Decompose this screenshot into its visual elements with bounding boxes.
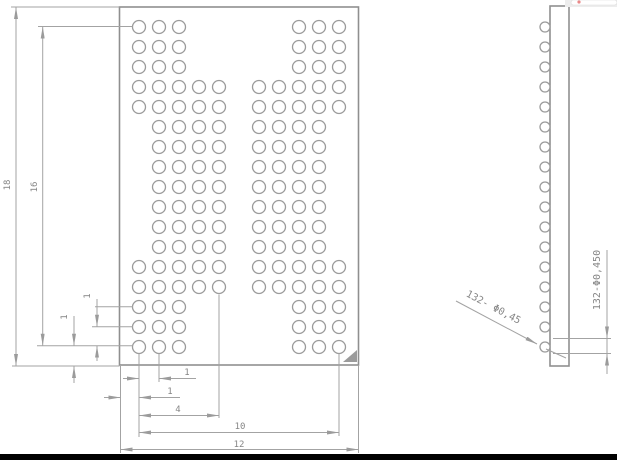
package-side-outline: [550, 6, 569, 366]
solder-ball: [293, 201, 306, 214]
dim-overall-width: 12: [121, 440, 359, 450]
solder-ball: [333, 341, 346, 354]
solder-ball: [253, 121, 266, 134]
solder-ball: [173, 101, 186, 114]
solder-ball: [193, 201, 206, 214]
solder-ball: [173, 221, 186, 234]
solder-ball: [273, 241, 286, 254]
solder-ball: [133, 61, 146, 74]
solder-ball: [213, 161, 226, 174]
dim-label-four-column-span: 4: [175, 405, 180, 415]
solder-ball: [193, 241, 206, 254]
solder-ball: [333, 61, 346, 74]
solder-ball: [540, 282, 550, 292]
solder-ball: [133, 281, 146, 294]
solder-ball: [133, 261, 146, 274]
solder-ball: [540, 202, 550, 212]
solder-ball: [333, 101, 346, 114]
solder-ball: [540, 182, 550, 192]
solder-ball: [173, 21, 186, 34]
solder-ball: [193, 141, 206, 154]
solder-ball: [133, 21, 146, 34]
solder-ball: [273, 261, 286, 274]
solder-ball: [273, 181, 286, 194]
solder-ball: [213, 181, 226, 194]
solder-ball: [313, 261, 326, 274]
solder-ball: [173, 301, 186, 314]
dim-label-row-pitch: 1: [83, 293, 93, 298]
solder-ball: [293, 41, 306, 54]
bga-technical-drawing: 18 16 1 1 1 1 4: [0, 0, 617, 460]
solder-ball: [313, 81, 326, 94]
solder-ball: [153, 81, 166, 94]
solder-ball: [313, 201, 326, 214]
solder-ball: [273, 201, 286, 214]
solder-ball: [193, 261, 206, 274]
solder-ball: [173, 281, 186, 294]
solder-ball: [153, 141, 166, 154]
solder-ball: [313, 341, 326, 354]
dim-label-col-pitch: 1: [184, 368, 189, 378]
solder-ball: [313, 321, 326, 334]
solder-ball: [273, 81, 286, 94]
solder-ball: [253, 101, 266, 114]
solder-ball: [540, 82, 550, 92]
solder-ball: [173, 61, 186, 74]
solder-ball: [213, 141, 226, 154]
dim-label-ball-field-height: 16: [30, 182, 40, 193]
solder-ball: [173, 201, 186, 214]
solder-ball: [293, 81, 306, 94]
solder-ball: [253, 201, 266, 214]
solder-ball: [213, 241, 226, 254]
solder-ball: [293, 241, 306, 254]
solder-ball: [173, 341, 186, 354]
front-view: [120, 7, 359, 365]
solder-ball: [313, 301, 326, 314]
solder-ball: [273, 121, 286, 134]
solder-ball: [313, 281, 326, 294]
side-view: [540, 6, 569, 366]
pin1-corner-marker: [343, 350, 357, 362]
solder-ball: [540, 62, 550, 72]
solder-ball: [293, 221, 306, 234]
solder-ball: [293, 261, 306, 274]
solder-ball: [253, 261, 266, 274]
solder-ball: [313, 141, 326, 154]
solder-ball: [293, 121, 306, 134]
solder-ball: [333, 81, 346, 94]
dim-label-row-edge-gap: 1: [60, 314, 70, 319]
solder-ball: [193, 181, 206, 194]
solder-ball-profile-column: [540, 22, 550, 352]
dim-label-ball-field-width: 10: [235, 422, 246, 432]
solder-ball: [253, 141, 266, 154]
solder-ball: [273, 141, 286, 154]
solder-ball: [253, 81, 266, 94]
solder-ball: [313, 121, 326, 134]
solder-ball: [193, 281, 206, 294]
dim-col-edge-gap: 1: [104, 387, 180, 398]
solder-ball: [313, 21, 326, 34]
solder-ball: [540, 242, 550, 252]
solder-ball: [213, 281, 226, 294]
record-dot-icon: [577, 0, 580, 3]
solder-ball: [540, 262, 550, 272]
solder-ball: [213, 201, 226, 214]
solder-ball: [133, 81, 146, 94]
solder-ball: [540, 122, 550, 132]
dim-ball-field-height: 16: [30, 27, 133, 346]
solder-ball: [293, 281, 306, 294]
solder-ball: [213, 221, 226, 234]
solder-ball: [213, 121, 226, 134]
solder-ball: [273, 281, 286, 294]
dim-four-column-span: 4: [139, 405, 219, 416]
solder-ball: [313, 181, 326, 194]
dim-ball-diameter-side: 132-Φ0,450: [553, 250, 611, 374]
browser-ui-fragment: [565, 0, 617, 7]
solder-ball: [313, 241, 326, 254]
solder-ball: [253, 181, 266, 194]
drawing-page: 18 16 1 1 1 1 4: [0, 0, 617, 460]
solder-ball: [153, 341, 166, 354]
solder-ball: [153, 121, 166, 134]
solder-ball: [133, 101, 146, 114]
solder-ball: [133, 301, 146, 314]
solder-ball: [540, 102, 550, 112]
solder-ball: [173, 241, 186, 254]
solder-ball: [333, 321, 346, 334]
solder-ball: [153, 41, 166, 54]
solder-ball: [193, 221, 206, 234]
solder-ball: [313, 161, 326, 174]
solder-ball: [293, 101, 306, 114]
solder-ball: [540, 22, 550, 32]
dim-label-overall-height: 18: [3, 180, 13, 191]
solder-ball: [273, 221, 286, 234]
solder-ball: [173, 121, 186, 134]
solder-ball: [540, 322, 550, 332]
solder-ball: [213, 261, 226, 274]
solder-ball: [253, 161, 266, 174]
solder-ball: [333, 21, 346, 34]
solder-ball: [540, 42, 550, 52]
solder-ball: [293, 61, 306, 74]
solder-ball: [153, 321, 166, 334]
dim-label-col-edge-gap: 1: [167, 387, 172, 397]
solder-ball: [333, 261, 346, 274]
solder-ball: [173, 321, 186, 334]
solder-ball: [213, 81, 226, 94]
solder-ball: [313, 221, 326, 234]
solder-ball: [293, 301, 306, 314]
solder-ball: [293, 161, 306, 174]
solder-ball: [193, 121, 206, 134]
solder-ball: [193, 101, 206, 114]
solder-ball: [293, 141, 306, 154]
dim-row-edge-gap: 1: [12, 314, 133, 383]
solder-ball: [333, 41, 346, 54]
solder-ball: [173, 81, 186, 94]
solder-ball: [253, 281, 266, 294]
solder-ball: [173, 41, 186, 54]
solder-ball: [540, 222, 550, 232]
solder-ball: [293, 21, 306, 34]
solder-ball: [153, 21, 166, 34]
window-edge-bar: [0, 454, 617, 460]
solder-ball: [333, 281, 346, 294]
solder-ball: [133, 341, 146, 354]
solder-ball: [313, 61, 326, 74]
solder-ball: [313, 101, 326, 114]
solder-ball: [153, 201, 166, 214]
solder-ball: [153, 221, 166, 234]
solder-ball: [273, 101, 286, 114]
solder-ball: [173, 161, 186, 174]
solder-ball: [153, 301, 166, 314]
solder-ball: [193, 81, 206, 94]
dim-row-pitch: 1: [83, 293, 133, 361]
solder-ball: [153, 261, 166, 274]
solder-ball: [293, 321, 306, 334]
ball-spec-side-label: 132-Φ0,450: [592, 250, 603, 310]
solder-ball: [333, 301, 346, 314]
solder-ball: [173, 261, 186, 274]
solder-ball: [540, 162, 550, 172]
solder-ball: [253, 241, 266, 254]
solder-ball: [133, 41, 146, 54]
solder-ball: [540, 142, 550, 152]
solder-ball: [153, 161, 166, 174]
solder-ball: [153, 241, 166, 254]
dim-overall-height: 18: [3, 7, 120, 366]
solder-ball: [213, 101, 226, 114]
solder-ball-grid: [133, 21, 346, 354]
solder-ball: [253, 221, 266, 234]
solder-ball: [540, 302, 550, 312]
solder-ball: [293, 181, 306, 194]
solder-ball: [173, 141, 186, 154]
dim-ball-field-width: 10: [139, 422, 339, 433]
dim-label-overall-width: 12: [234, 440, 245, 450]
solder-ball: [313, 41, 326, 54]
solder-ball: [153, 181, 166, 194]
solder-ball: [193, 161, 206, 174]
solder-ball: [153, 61, 166, 74]
solder-ball: [133, 321, 146, 334]
solder-ball: [153, 281, 166, 294]
solder-ball: [153, 101, 166, 114]
solder-ball: [293, 341, 306, 354]
solder-ball: [173, 181, 186, 194]
solder-ball: [273, 161, 286, 174]
